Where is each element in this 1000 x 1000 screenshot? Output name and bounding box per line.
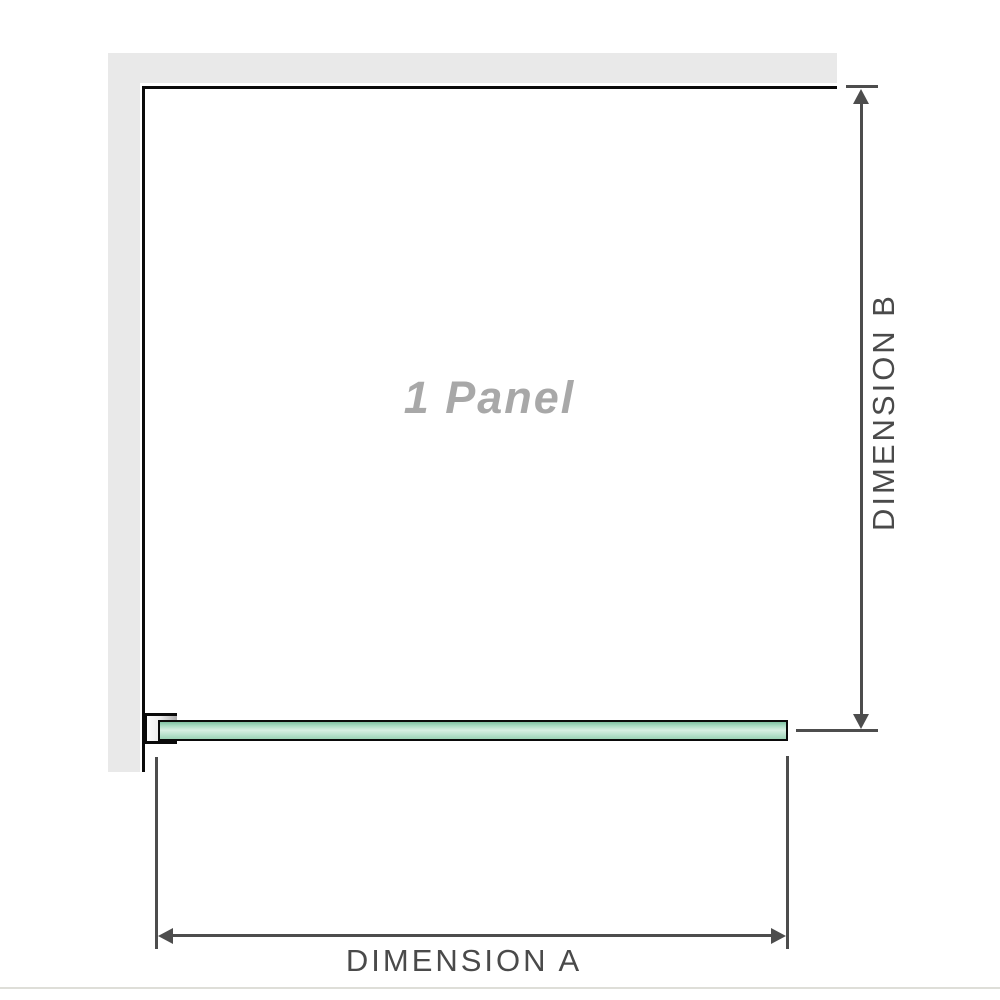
dimension-a-extension-left bbox=[155, 757, 158, 949]
dimension-a-extension-right bbox=[786, 756, 789, 949]
dimension-b-tick-top bbox=[846, 85, 878, 88]
panel-outline-top bbox=[142, 86, 837, 89]
panel-outline-left bbox=[142, 86, 145, 772]
panel-dimension-diagram: 1 Panel DIMENSION B DIMENSION A bbox=[0, 0, 1000, 1000]
dimension-b-label: DIMENSION B bbox=[866, 293, 902, 531]
wall-top bbox=[108, 53, 837, 83]
dimension-b-tick-bottom bbox=[796, 729, 878, 732]
dimension-b-arrow-up-icon bbox=[853, 89, 869, 104]
panel-count-label: 1 Panel bbox=[142, 372, 837, 424]
dimension-a-arrow-right-icon bbox=[771, 928, 786, 944]
dimension-a-label: DIMENSION A bbox=[346, 943, 582, 979]
page-bottom-rule bbox=[0, 987, 1000, 989]
glass-panel bbox=[158, 720, 788, 741]
dimension-b-line bbox=[860, 97, 863, 720]
dimension-a-line bbox=[168, 934, 776, 937]
wall-left bbox=[108, 53, 140, 772]
dimension-a-arrow-left-icon bbox=[158, 928, 173, 944]
dimension-b-arrow-down-icon bbox=[853, 714, 869, 729]
